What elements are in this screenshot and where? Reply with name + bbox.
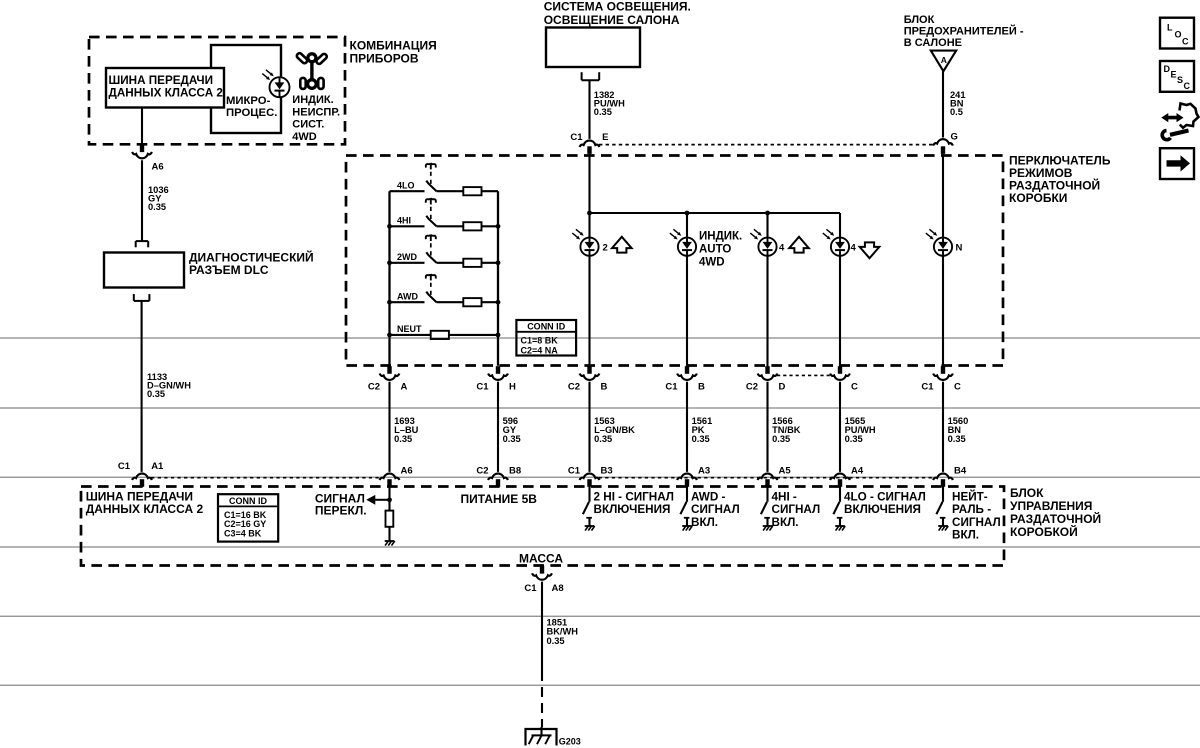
svg-text:C: C [1184, 81, 1191, 91]
svg-text:0.35: 0.35 [845, 434, 863, 444]
svg-text:A4: A4 [851, 465, 864, 476]
svg-text:2: 2 [603, 243, 608, 254]
svg-text:4WD: 4WD [699, 257, 725, 269]
svg-text:ПИТАНИЕ 5В: ПИТАНИЕ 5В [461, 492, 538, 506]
svg-text:AWD -: AWD - [691, 490, 726, 503]
svg-text:ИНДИК.: ИНДИК. [292, 94, 333, 106]
svg-text:ВКЛ.: ВКЛ. [952, 529, 979, 542]
svg-text:4WD: 4WD [292, 131, 317, 143]
svg-text:C2: C2 [568, 381, 580, 392]
svg-text:C1: C1 [118, 461, 131, 472]
svg-text:C1: C1 [921, 381, 934, 392]
svg-text:СИГНАЛ: СИГНАЛ [691, 503, 740, 516]
svg-text:NEUT: NEUT [397, 324, 422, 334]
svg-text:C1: C1 [476, 381, 489, 392]
svg-text:C2: C2 [368, 381, 380, 392]
svg-text:БЛОК: БЛОК [1010, 486, 1044, 500]
svg-text:0.35: 0.35 [772, 434, 790, 444]
svg-text:L: L [1167, 23, 1173, 33]
svg-text:B8: B8 [509, 465, 521, 476]
svg-text:0.35: 0.35 [147, 389, 165, 399]
svg-text:B3: B3 [601, 465, 613, 476]
svg-text:ДАННЫХ КЛАССА 2: ДАННЫХ КЛАССА 2 [86, 502, 204, 516]
svg-text:D: D [779, 381, 786, 392]
svg-text:2WD: 2WD [397, 252, 418, 262]
svg-text:C2=4 NA: C2=4 NA [521, 345, 559, 355]
svg-text:AUTO: AUTO [699, 244, 731, 256]
svg-text:B: B [601, 381, 608, 392]
svg-text:B: B [698, 381, 705, 392]
svg-text:БЛОК: БЛОК [904, 14, 935, 26]
svg-text:C1: C1 [665, 381, 678, 392]
svg-text:O: O [1175, 30, 1182, 40]
svg-text:МАССА: МАССА [519, 551, 563, 565]
svg-text:4HI: 4HI [397, 216, 411, 226]
svg-text:КОМБИНАЦИЯ: КОМБИНАЦИЯ [350, 38, 437, 52]
svg-text:C: C [851, 381, 858, 392]
svg-text:СИСТЕМА ОСВЕЩЕНИЯ.: СИСТЕМА ОСВЕЩЕНИЯ. [544, 0, 691, 13]
svg-text:КОРОБКОЙ: КОРОБКОЙ [1010, 524, 1078, 539]
svg-text:C1: C1 [570, 132, 583, 143]
svg-text:РАЗДАТОЧНОЙ: РАЗДАТОЧНОЙ [1010, 511, 1101, 526]
svg-text:ПРИБОРОВ: ПРИБОРОВ [350, 51, 419, 65]
svg-text:СИСТ.: СИСТ. [292, 119, 324, 131]
svg-text:A3: A3 [698, 465, 710, 476]
svg-text:A6: A6 [152, 162, 164, 173]
svg-text:AWD: AWD [397, 291, 418, 301]
svg-text:B4: B4 [954, 465, 967, 476]
svg-text:КОРОБКИ: КОРОБКИ [1009, 191, 1067, 205]
svg-text:НЕИСПР.: НЕИСПР. [292, 106, 340, 118]
svg-text:G: G [951, 132, 958, 143]
svg-text:В САЛОНЕ: В САЛОНЕ [904, 37, 962, 49]
svg-text:S: S [1177, 75, 1183, 85]
svg-text:0.35: 0.35 [594, 434, 612, 444]
svg-text:CONN ID: CONN ID [229, 496, 268, 506]
svg-text:РАЗЪЕМ DLC: РАЗЪЕМ DLC [189, 263, 269, 277]
svg-text:C1: C1 [568, 465, 581, 476]
svg-text:ИНДИК.: ИНДИК. [699, 231, 742, 243]
svg-text:2 HI - СИГНАЛ: 2 HI - СИГНАЛ [594, 490, 675, 503]
svg-text:C: C [1182, 36, 1189, 46]
svg-text:4: 4 [779, 243, 785, 254]
svg-text:G203: G203 [559, 736, 581, 746]
svg-text:E: E [1171, 69, 1177, 79]
svg-text:ДАННЫХ КЛАССА 2: ДАННЫХ КЛАССА 2 [109, 86, 224, 99]
svg-text:4HI -: 4HI - [772, 490, 797, 503]
svg-text:C2: C2 [476, 465, 488, 476]
svg-text:C1: C1 [524, 583, 537, 594]
svg-text:ВКЛ.: ВКЛ. [772, 516, 799, 529]
svg-text:ВКЛЮЧЕНИЯ: ВКЛЮЧЕНИЯ [594, 503, 671, 516]
svg-text:0.35: 0.35 [148, 202, 166, 212]
svg-text:ПРЕДОХРАНИТЕЛЕЙ -: ПРЕДОХРАНИТЕЛЕЙ - [904, 24, 1024, 37]
svg-text:C1=8 BK: C1=8 BK [521, 335, 559, 345]
svg-text:МИКРО-: МИКРО- [226, 95, 271, 107]
svg-text:4LO - СИГНАЛ: 4LO - СИГНАЛ [844, 490, 926, 503]
svg-text:CONN ID: CONN ID [527, 322, 566, 332]
svg-text:A: A [401, 381, 408, 392]
svg-text:ШИНА ПЕРЕДАЧИ: ШИНА ПЕРЕДАЧИ [109, 74, 214, 87]
svg-text:РАЛЬ -: РАЛЬ - [952, 503, 991, 516]
svg-text:ПРОЦЕС.: ПРОЦЕС. [226, 107, 277, 119]
svg-text:0.35: 0.35 [692, 434, 710, 444]
svg-text:0.35: 0.35 [547, 636, 565, 646]
svg-text:НЕЙТ-: НЕЙТ- [952, 490, 988, 503]
svg-text:H: H [509, 381, 516, 392]
svg-text:СИГНАЛ: СИГНАЛ [772, 503, 821, 516]
svg-text:0.35: 0.35 [394, 434, 412, 444]
svg-text:C2: C2 [746, 381, 758, 392]
svg-text:0.35: 0.35 [948, 434, 966, 444]
svg-text:N: N [956, 243, 963, 254]
svg-text:A1: A1 [151, 461, 164, 472]
svg-text:УПРАВЛЕНИЯ: УПРАВЛЕНИЯ [1010, 499, 1092, 513]
svg-text:ВКЛ.: ВКЛ. [691, 516, 718, 529]
svg-text:C3=4 BK: C3=4 BK [224, 528, 262, 538]
svg-text:A6: A6 [401, 465, 413, 476]
svg-text:A8: A8 [552, 583, 564, 594]
svg-text:ОСВЕЩЕНИЕ САЛОНА: ОСВЕЩЕНИЕ САЛОНА [544, 13, 680, 27]
svg-text:ПЕРЕКЛ.: ПЕРЕКЛ. [315, 504, 367, 518]
svg-text:A5: A5 [779, 465, 792, 476]
svg-text:0.5: 0.5 [950, 107, 963, 117]
svg-text:C: C [954, 381, 961, 392]
svg-text:0.35: 0.35 [503, 434, 521, 444]
svg-text:A: A [941, 55, 947, 65]
svg-text:0.35: 0.35 [594, 107, 612, 117]
svg-text:ВКЛЮЧЕНИЯ: ВКЛЮЧЕНИЯ [844, 503, 921, 516]
svg-text:4LO: 4LO [397, 180, 415, 190]
svg-text:D: D [1164, 64, 1171, 74]
svg-text:E: E [602, 132, 608, 143]
svg-text:СИГНАЛ: СИГНАЛ [952, 516, 1001, 529]
svg-text:4: 4 [851, 243, 857, 254]
